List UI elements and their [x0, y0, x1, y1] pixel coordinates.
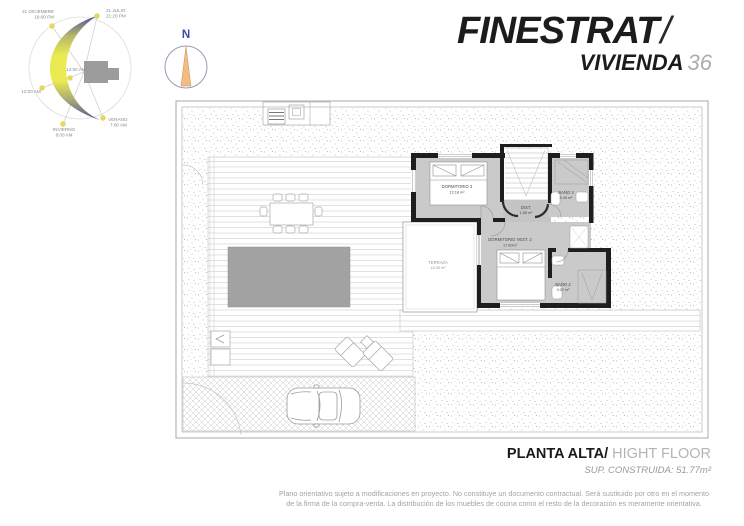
noon-left-label: 12:00 AM	[21, 89, 41, 94]
closet-detail	[570, 226, 588, 248]
room-area-dormitorio3: 12.18 m²	[450, 191, 466, 195]
north-letter: N	[182, 29, 190, 41]
room-area-bano2: 4.07 m²	[557, 288, 571, 292]
house-footprint-icon	[84, 61, 119, 83]
disclaimer-text: Plano orientativo sujeto a modificacione…	[254, 489, 734, 509]
floor-title: PLANTA ALTA/ HIGHT FLOOR	[507, 447, 711, 463]
room-label-terraza: TERRAZA	[428, 260, 448, 265]
north-arrow-icon	[181, 47, 191, 87]
parked-car	[287, 385, 360, 427]
built-surface: SUP. CONSTRUIDA: 51.77m²	[507, 465, 711, 476]
winter-label: INVIERNO	[53, 127, 76, 132]
walkway-path	[400, 310, 700, 331]
summer-sunset-date-label: 21 JULIO	[106, 8, 126, 13]
room-label-dormitorio3: DORMITORIO 3	[442, 184, 473, 189]
unit-title: VIVIENDA36	[457, 52, 712, 74]
room-area-dist: 1.55 m²	[520, 211, 534, 215]
unit-number: 36	[688, 50, 712, 75]
house-floorplan: DORMITORIO 3 12.18 m² BAÑO 3 5.40 m² DIS…	[403, 144, 611, 312]
floor-name-en: HIGHT FLOOR	[612, 446, 711, 462]
outdoor-kitchen	[263, 102, 330, 125]
unit-label: VIVIENDA	[580, 50, 684, 75]
project-title: FINESTRAT/	[457, 12, 670, 50]
sun-path-diagram: 21 DICIEMBRE 18:00 PM 21 JULIO 21:20 PM …	[0, 0, 160, 150]
floor-name-es: PLANTA ALTA/	[507, 446, 608, 462]
plan-sheet: { "header": { "project_title": "FINESTRA…	[0, 0, 744, 526]
room-bano3-floor	[548, 157, 589, 217]
room-label-dist: DIST.	[521, 205, 531, 210]
bed-dormitorio2	[497, 250, 545, 300]
staircase-floor	[503, 148, 548, 200]
winter-time-label: 8:00 AM	[56, 133, 73, 138]
summer-label: VERANO	[108, 117, 128, 122]
summer-sunset-time-label: 21:20 PM	[106, 14, 126, 19]
title-slash: /	[660, 10, 670, 52]
footer-block: PLANTA ALTA/ HIGHT FLOOR SUP. CONSTRUIDA…	[507, 447, 711, 476]
noon-center-label: 12:00 AM	[66, 67, 86, 72]
project-title-text: FINESTRAT	[457, 10, 658, 52]
room-label-bano2: BAÑO 2	[555, 282, 571, 287]
disclaimer-line2: de la firma de la compra-venta. La distr…	[254, 499, 734, 509]
compass-north-indicator: N	[152, 24, 220, 96]
room-area-dormitorio2: 17.60m²	[503, 244, 518, 248]
room-area-terraza: 16.08 m²	[431, 266, 447, 270]
room-area-bano3: 5.40 m²	[560, 196, 574, 200]
swimming-pool	[228, 247, 350, 307]
title-block: FINESTRAT/ VIVIENDA36	[457, 12, 712, 74]
room-label-bano3: BAÑO 3	[558, 190, 574, 195]
summer-time-label: 7:00 AM	[110, 123, 127, 128]
site-plan: DORMITORIO 3 12.18 m² BAÑO 3 5.40 m² DIS…	[175, 95, 710, 440]
room-label-dormitorio2: DORMITORIO VEST. 2	[488, 237, 532, 242]
sink-icon	[576, 192, 588, 202]
winter-sunset-date-label: 21 DICIEMBRE	[22, 9, 54, 14]
disclaimer-line1: Plano orientativo sujeto a modificacione…	[254, 489, 734, 499]
dining-table	[270, 203, 313, 225]
winter-sunset-time-label: 18:00 PM	[34, 15, 54, 20]
